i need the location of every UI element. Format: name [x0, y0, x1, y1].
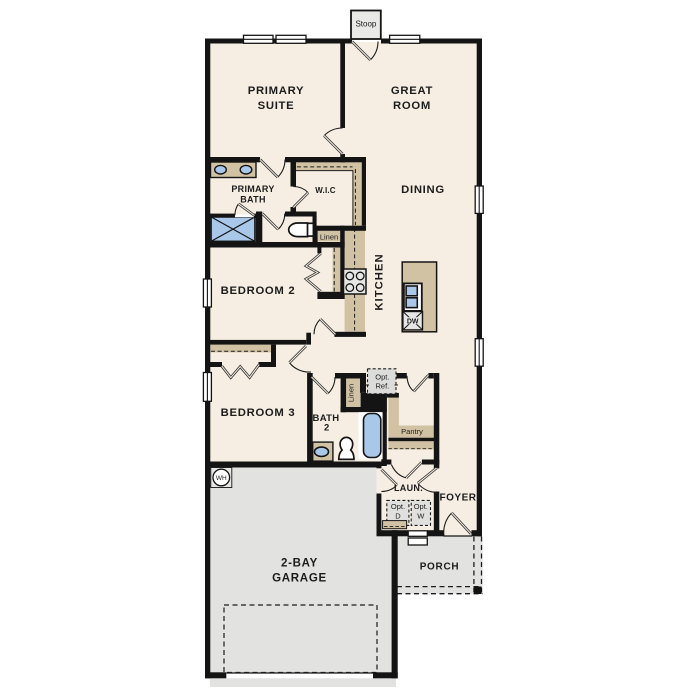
svg-text:Pantry: Pantry [401, 427, 423, 436]
svg-text:W.I.C: W.I.C [315, 186, 336, 195]
svg-text:2-BAY: 2-BAY [281, 558, 318, 570]
svg-text:BATH: BATH [240, 195, 266, 205]
svg-text:ROOM: ROOM [393, 100, 431, 112]
svg-text:Stoop: Stoop [355, 20, 376, 29]
svg-text:WH: WH [216, 475, 227, 482]
svg-text:GARAGE: GARAGE [272, 573, 327, 585]
svg-text:Opt.: Opt. [375, 373, 389, 382]
svg-text:SUITE: SUITE [258, 100, 295, 112]
svg-text:W: W [417, 512, 425, 521]
svg-text:DINING: DINING [401, 184, 445, 196]
svg-text:D: D [395, 512, 401, 521]
svg-text:KITCHEN: KITCHEN [374, 253, 386, 310]
svg-text:Linen: Linen [320, 232, 338, 241]
svg-text:Opt.: Opt. [391, 502, 405, 511]
svg-text:GREAT: GREAT [391, 85, 433, 97]
svg-text:Linen: Linen [346, 384, 355, 402]
svg-text:FOYER: FOYER [440, 493, 477, 504]
svg-text:LAUN.: LAUN. [394, 483, 423, 493]
svg-text:2: 2 [324, 423, 330, 434]
svg-text:BEDROOM 2: BEDROOM 2 [221, 285, 296, 297]
svg-text:Opt.: Opt. [414, 502, 428, 511]
svg-text:PORCH: PORCH [420, 562, 460, 573]
svg-text:PRIMARY: PRIMARY [248, 85, 305, 97]
svg-text:DW: DW [407, 319, 419, 326]
svg-text:PRIMARY: PRIMARY [231, 184, 274, 194]
svg-text:BEDROOM 3: BEDROOM 3 [221, 407, 296, 419]
svg-text:Ref.: Ref. [376, 382, 390, 391]
